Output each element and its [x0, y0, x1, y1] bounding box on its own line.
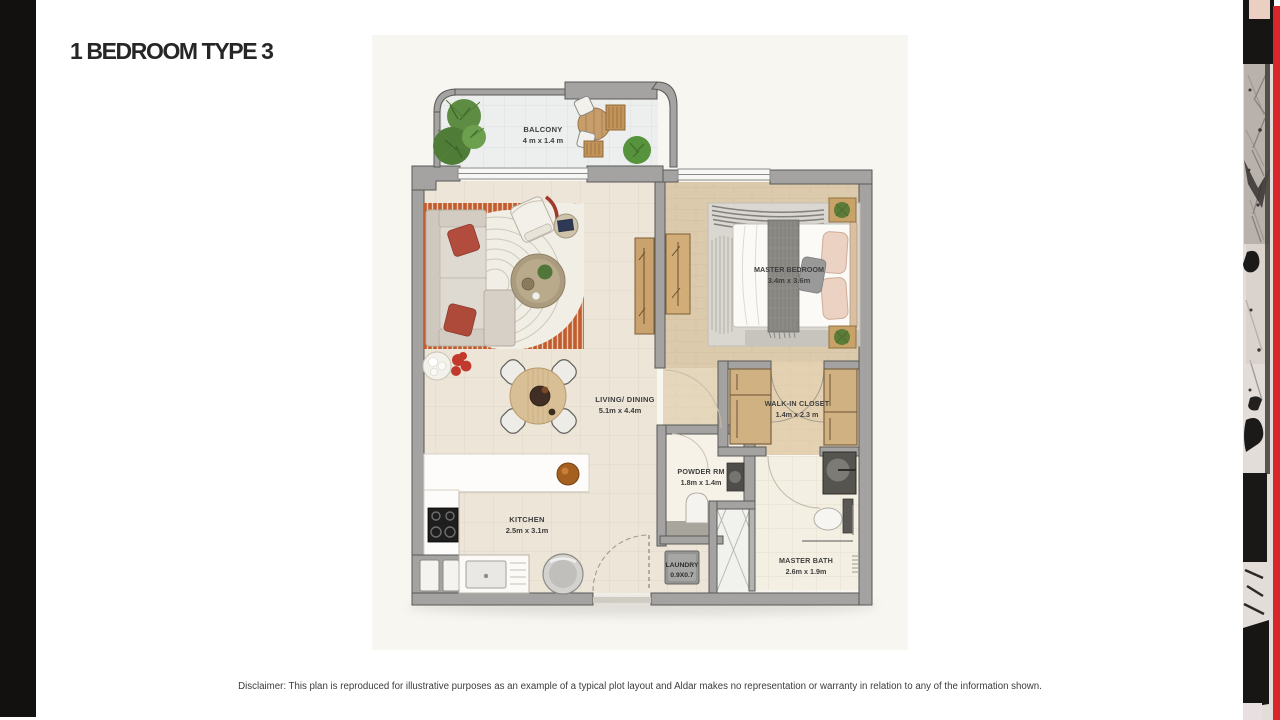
svg-text:1 BEDROOM TYPE 3: 1 BEDROOM TYPE 3	[70, 38, 273, 64]
svg-text:POWDER RM: POWDER RM	[677, 467, 724, 476]
svg-text:1.8m x 1.4m: 1.8m x 1.4m	[681, 478, 722, 487]
svg-text:1.4m x 2.3 m: 1.4m x 2.3 m	[776, 410, 819, 419]
svg-text:Disclaimer: This plan is repro: Disclaimer: This plan is reproduced for …	[238, 681, 1042, 692]
svg-text:0.9X0.7: 0.9X0.7	[670, 572, 694, 579]
svg-text:WALK-IN CLOSET: WALK-IN CLOSET	[765, 399, 830, 408]
svg-text:BALCONY: BALCONY	[523, 125, 562, 134]
svg-text:2.5m x 3.1m: 2.5m x 3.1m	[506, 526, 549, 535]
svg-text:LAUNDRY: LAUNDRY	[666, 562, 699, 569]
svg-text:3.4m x 3.6m: 3.4m x 3.6m	[768, 276, 811, 285]
svg-text:5.1m x 4.4m: 5.1m x 4.4m	[599, 406, 642, 415]
svg-text:KITCHEN: KITCHEN	[509, 515, 544, 524]
svg-text:MASTER BEDROOM: MASTER BEDROOM	[754, 265, 824, 274]
svg-text:4 m x 1.4 m: 4 m x 1.4 m	[523, 136, 564, 145]
svg-text:LIVING/ DINING: LIVING/ DINING	[595, 395, 655, 404]
svg-text:2.6m x 1.9m: 2.6m x 1.9m	[786, 567, 827, 576]
svg-text:MASTER BATH: MASTER BATH	[779, 556, 833, 565]
